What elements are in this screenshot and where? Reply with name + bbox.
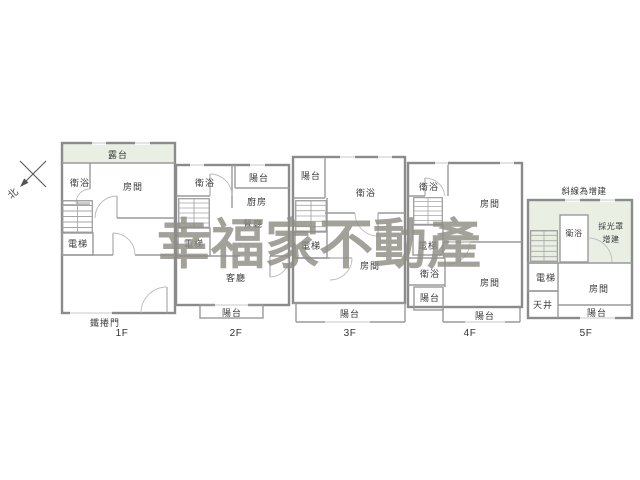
room-label-balcony-top: 陽台 [249,172,269,183]
bath-5f [560,215,588,262]
floor-label-5f: 5F [580,328,593,339]
room-label-kitchen: 廚房 [247,196,267,207]
room-label-bath: 衛浴 [70,177,90,188]
room-label-rolling-door: 鐵捲門 [90,317,120,328]
room-label-terrace: 露台 [108,149,128,160]
floor-label-1f: 1F [116,328,129,339]
room-label-elevator: 電梯 [536,272,556,283]
room-label-skylight-1: 採光罩 [598,221,624,231]
room-label-elevator: 電梯 [68,238,88,249]
room-label-lightwell: 天井 [533,299,553,310]
room-label-balcony-bottom: 陽台 [340,308,360,319]
room-label-room-bottom: 房間 [480,277,500,288]
room-label-room: 房間 [123,181,143,192]
room-label-balcony: 陽台 [587,307,607,318]
room-label-room-top: 房間 [480,198,500,209]
extension-note: 斜線為增建 [561,186,606,196]
north-label: 北 [5,186,20,202]
floor-plan-5f: 斜線為增建 衛浴 採光罩 增建 電梯 天井 房間 陽台 5F [528,186,632,339]
room-label-skylight-2: 增建 [603,234,620,244]
room-label-balcony-bottom: 陽台 [222,307,242,318]
floor-label-4f: 4F [464,328,477,339]
room-label-balcony-left: 陽台 [420,292,440,303]
floor-plan-svg: 北 露台 衛浴 房間 電梯 鐵捲門 [0,0,640,480]
room-label-balcony-top: 陽台 [301,170,321,181]
room-label-bath-top: 衛浴 [419,181,439,192]
floor-label-3f: 3F [344,328,357,339]
north-arrow: 北 [5,161,46,202]
agency-watermark: 幸福家不動產 [157,215,481,275]
floor-label-2f: 2F [230,328,243,339]
room-label-balcony-bottom: 陽台 [475,310,495,321]
floor-plan-image: 北 露台 衛浴 房間 電梯 鐵捲門 [0,0,640,480]
room-label-room: 房間 [589,283,609,294]
room-label-bath: 衛浴 [195,177,215,188]
room-label-bath: 衛浴 [356,187,376,198]
room-label-bath: 衛浴 [566,228,583,238]
